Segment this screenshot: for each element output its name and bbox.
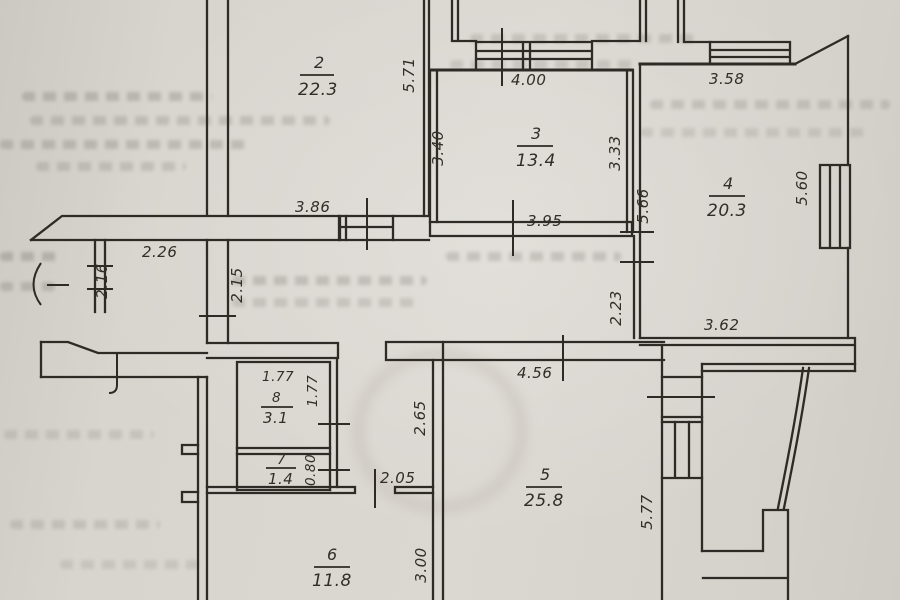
floor-plan-drawing: 2 22.3 3 13.4 4 20.3 5 25.8 6 11.8 7 1.4 [0, 0, 900, 600]
room-area: 1.4 [268, 470, 293, 488]
room-area: 13.4 [516, 151, 556, 171]
dim-room4-top: 3.58 [709, 70, 744, 88]
dim-room8-right: 1.77 [305, 375, 321, 407]
room-number: 8 [272, 390, 281, 406]
door-leaf [109, 354, 117, 393]
dim-room4-bottom: 3.62 [704, 316, 739, 334]
dim-room4-lower-left: 2.23 [607, 290, 625, 325]
walls-entry-hall [34, 216, 347, 393]
scanned-floor-plan-page: 2 22.3 3 13.4 4 20.3 5 25.8 6 11.8 7 1.4 [0, 0, 900, 600]
wall-pier [182, 445, 198, 454]
room-number: 7 [277, 452, 286, 468]
door-swing-arc [34, 263, 42, 305]
room-6-label: 6 11.8 [312, 545, 352, 591]
dim-entry-width: 2.26 [142, 243, 177, 261]
dim-room3-top: 4.00 [511, 71, 546, 89]
room-4-label: 4 20.3 [707, 174, 747, 221]
room-area: 3.1 [263, 409, 288, 427]
room-area: 25.8 [524, 491, 564, 511]
window-symbol [820, 165, 850, 248]
walls-room-5-and-wing [386, 342, 809, 600]
room-2-label: 2 22.3 [298, 53, 338, 100]
balcony-curve [778, 368, 803, 508]
dim-entry-left: 2.16 [93, 263, 111, 298]
dim-room2-side: 5.71 [400, 57, 418, 92]
room-number: 4 [723, 174, 734, 193]
dim-room4-left: 5.66 [634, 188, 652, 223]
room-number: 5 [540, 465, 551, 484]
room-number: 2 [314, 53, 325, 72]
walls-room-2 [31, 0, 429, 240]
dim-room4-right: 5.60 [793, 170, 811, 205]
dim-room3-left: 3.40 [429, 130, 447, 165]
dim-room7-right: 0.80 [303, 454, 319, 486]
dim-hall-right: 2.65 [411, 400, 429, 435]
dim-room5-right: 5.77 [638, 494, 656, 529]
walls-room-3 [430, 0, 646, 236]
balcony-curve [784, 368, 809, 508]
dim-corridor-left: 2.15 [228, 267, 246, 302]
dim-room3-right: 3.33 [606, 135, 624, 170]
window-symbol [476, 42, 592, 70]
room-3-label: 3 13.4 [516, 124, 556, 171]
dim-room2-bottom: 3.86 [295, 198, 330, 216]
dim-room3-bottom: 3.95 [527, 212, 562, 230]
dim-room6-right: 3.00 [412, 547, 430, 582]
room-number: 3 [531, 124, 542, 143]
dim-room5-top: 4.56 [517, 364, 552, 382]
room-8-label: 8 3.1 [261, 390, 293, 427]
room-area: 11.8 [312, 571, 352, 591]
wall-pier [182, 492, 198, 502]
window-symbol [662, 422, 702, 478]
room-7-label: 7 1.4 [266, 452, 296, 488]
room-number: 6 [327, 545, 338, 564]
window-symbol [710, 42, 790, 64]
walls-room-6 [182, 377, 433, 600]
room-area: 22.3 [298, 80, 338, 100]
dim-room8-top: 1.77 [262, 369, 294, 385]
room-5-label: 5 25.8 [524, 465, 564, 511]
dimension-ticks [367, 28, 563, 508]
room-area: 20.3 [707, 201, 747, 221]
dim-hall-bottom: 2.05 [380, 469, 415, 487]
